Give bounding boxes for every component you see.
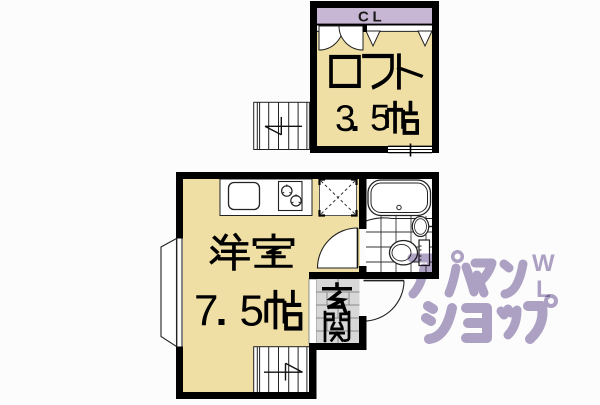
svg-text:L: L: [373, 9, 382, 26]
svg-text:L: L: [536, 276, 551, 303]
svg-text:W: W: [532, 250, 555, 277]
svg-text:3: 3: [335, 98, 356, 139]
svg-text:C: C: [358, 9, 369, 26]
svg-text:7: 7: [194, 287, 218, 336]
svg-text:5: 5: [240, 287, 264, 336]
